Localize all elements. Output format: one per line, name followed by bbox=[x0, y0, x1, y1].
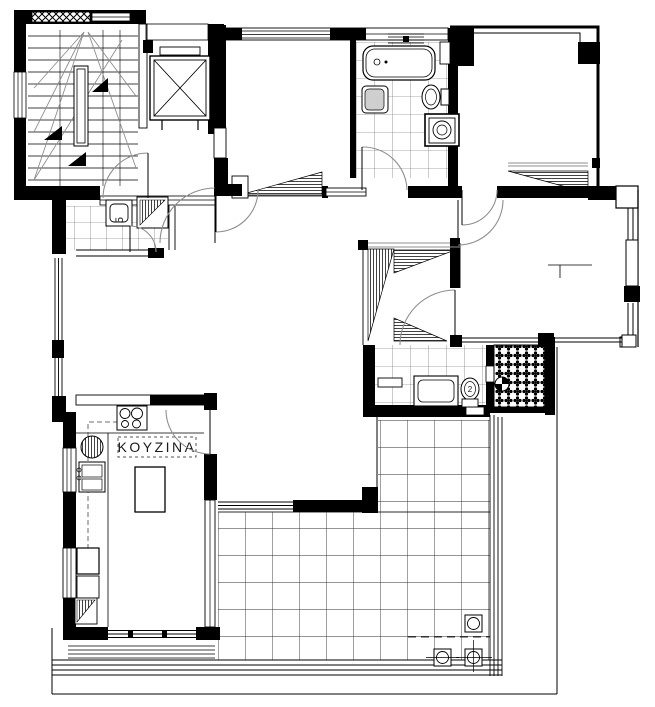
wardrobe-hatch-vertical bbox=[368, 249, 394, 341]
kitchen-stove bbox=[117, 406, 147, 430]
toilet bbox=[422, 85, 449, 109]
floor-plan-svg: 5 bbox=[0, 0, 655, 707]
wall-basin bbox=[378, 378, 402, 387]
kitchen-label-box: KOYZINA bbox=[118, 437, 197, 457]
tag-5-label: 5 bbox=[114, 217, 126, 223]
elevator-lintel bbox=[160, 47, 200, 55]
wardrobe-hatch-upper bbox=[394, 250, 455, 273]
stair-exit-door bbox=[103, 153, 148, 198]
kitchen-label: KOYZINA bbox=[118, 439, 197, 455]
kitchen-cabinet bbox=[77, 576, 99, 598]
kitchen-sink bbox=[77, 462, 105, 492]
elevator bbox=[143, 24, 224, 134]
bathtub bbox=[363, 46, 435, 80]
bedroom-top-left bbox=[214, 25, 352, 198]
water-heater bbox=[81, 436, 103, 458]
bedroom-mid-right bbox=[450, 190, 640, 347]
wardrobe-hatch bbox=[240, 172, 322, 196]
terrace-tiles bbox=[218, 417, 490, 660]
level-marker bbox=[495, 377, 509, 391]
desk-lines bbox=[548, 265, 592, 278]
toilet: 2 bbox=[461, 378, 479, 407]
washing-machine bbox=[425, 114, 459, 146]
shower-tray bbox=[414, 376, 458, 406]
floor-drain bbox=[465, 615, 482, 632]
refrigerator-hatch bbox=[75, 598, 97, 624]
closet-zone bbox=[358, 238, 460, 345]
tag-box-5: 5 bbox=[106, 200, 132, 226]
toilet-tag-label: 2 bbox=[468, 385, 473, 394]
kitchen-appliance bbox=[77, 548, 99, 574]
bedroom-top-right-door bbox=[462, 190, 497, 225]
washbasin bbox=[362, 86, 388, 113]
floor-plan: 5 bbox=[0, 0, 655, 707]
bedroom-mid-right-door bbox=[458, 200, 503, 245]
kitchen: KOYZINA bbox=[63, 395, 220, 640]
staircase bbox=[14, 10, 147, 200]
kitchen-island bbox=[135, 467, 165, 512]
